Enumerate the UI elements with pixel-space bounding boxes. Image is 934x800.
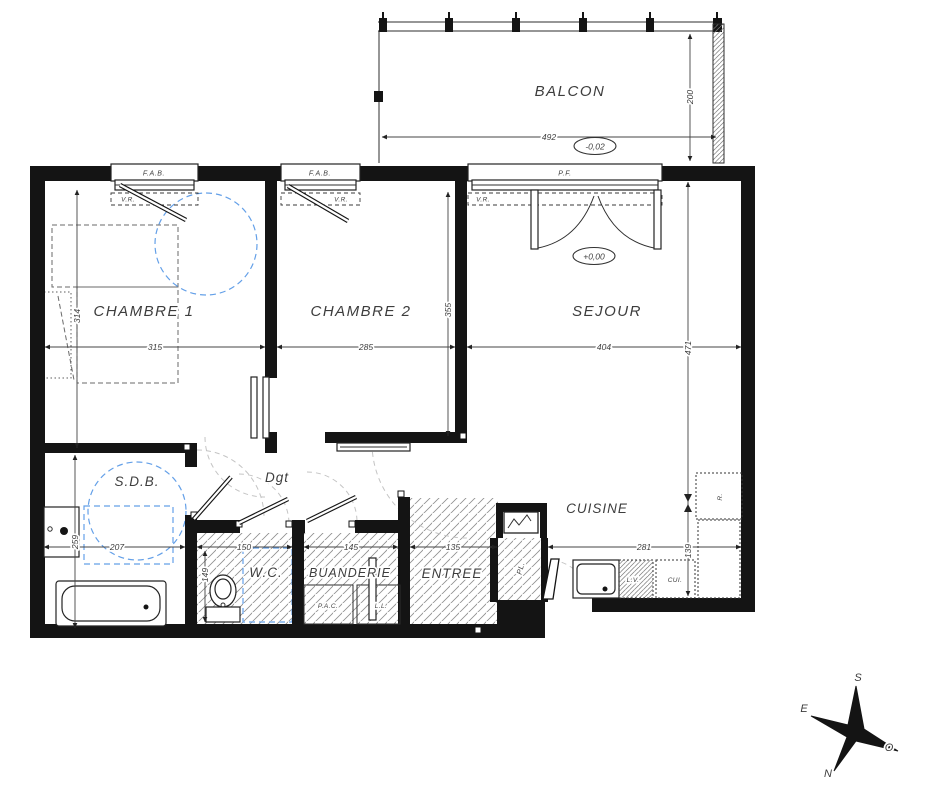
wardrobe [44, 292, 71, 378]
equip-label-ll: L.L. [375, 603, 387, 610]
room-label-wc: W.C. [249, 565, 283, 580]
compass-west: O [885, 742, 894, 754]
balcony-side-screen [713, 24, 724, 163]
dim-chambre2-depth: 355 [443, 303, 453, 317]
window-label-fab2: F.A.B. [309, 171, 331, 178]
room-label-chambre2: CHAMBRE 2 [310, 303, 411, 320]
compass-star [811, 686, 898, 771]
equip-label-cui: CUI. [668, 577, 683, 584]
bed [77, 287, 178, 383]
dim-sejour-width: 404 [597, 342, 611, 352]
level-sejour: +0,00 [583, 252, 605, 262]
room-label-cuisine: CUISINE [566, 501, 628, 516]
floorplan-svg: BALCON 492 200 -0,02 P.F. F.A.B. F.A.B. … [0, 0, 934, 800]
kitchen-column [698, 520, 740, 598]
shutter-label-3: V.R. [476, 197, 490, 204]
access-rect-sdb [84, 506, 173, 564]
chambre1-pocket-door [251, 377, 257, 438]
dim-balcon-width: 492 [542, 132, 556, 142]
shutter-label-2: V.R. [334, 197, 348, 204]
room-label-chambre1: CHAMBRE 1 [93, 303, 194, 320]
dim-chambre2-width: 285 [358, 342, 373, 352]
turning-circle-chambre1 [155, 193, 257, 295]
dim-entree-width: 135 [446, 542, 460, 552]
french-door-right-leaf [654, 190, 661, 249]
floorplan-canvas: BALCON 492 200 -0,02 P.F. F.A.B. F.A.B. … [0, 0, 934, 800]
room-label-buanderie: BUANDERIE [309, 566, 391, 580]
dim-sdb-width: 207 [109, 542, 124, 552]
french-door-left-leaf [531, 190, 538, 249]
bed-head [52, 225, 178, 287]
compass-east: E [800, 703, 808, 715]
dim-cuisine-width: 281 [636, 542, 651, 552]
dim-chambre1-depth: 314 [72, 309, 82, 323]
buanderie-door [307, 497, 356, 521]
level-balcon: -0,02 [585, 142, 605, 152]
equip-label-fridge: R. [717, 493, 724, 500]
bathtub [56, 581, 166, 626]
window-label-pf: P.F. [558, 171, 571, 178]
shutter-label-1: V.R. [121, 197, 135, 204]
dim-sejour-depth: 471 [683, 341, 693, 355]
dim-wc-width: 150 [237, 542, 251, 552]
room-label-balcon: BALCON [535, 83, 606, 100]
wc-door [239, 499, 288, 523]
room-label-entree: ENTREE [422, 566, 483, 581]
dim-chambre1-width: 315 [148, 342, 162, 352]
railing-posts [379, 18, 722, 32]
dim-sdb-depth: 259 [70, 535, 80, 550]
dim-wc-depth: 149 [200, 568, 210, 582]
room-label-sejour: SEJOUR [572, 303, 642, 320]
level-markers [573, 138, 616, 265]
room-label-dgt: Dgt [265, 470, 289, 485]
entree-floor-hatch [410, 498, 498, 624]
window-label-fab1: F.A.B. [143, 171, 165, 178]
dim-balcon-depth: 200 [685, 90, 695, 105]
compass-north: N [824, 768, 832, 780]
intercom-box [504, 512, 538, 533]
sdb-door [194, 477, 231, 519]
equip-label-pac: P.A.C. [318, 603, 338, 610]
dim-cuisine-depth: 139 [683, 544, 693, 558]
equip-label-lv: L.V. [627, 577, 640, 584]
room-label-sdb: S.D.B. [114, 474, 159, 489]
compass-south: S [854, 672, 862, 684]
dim-buanderie-width: 145 [344, 542, 358, 552]
compass: S E O N [800, 672, 898, 780]
kitchen-counter [573, 473, 742, 598]
kitchen-sink [577, 564, 615, 594]
